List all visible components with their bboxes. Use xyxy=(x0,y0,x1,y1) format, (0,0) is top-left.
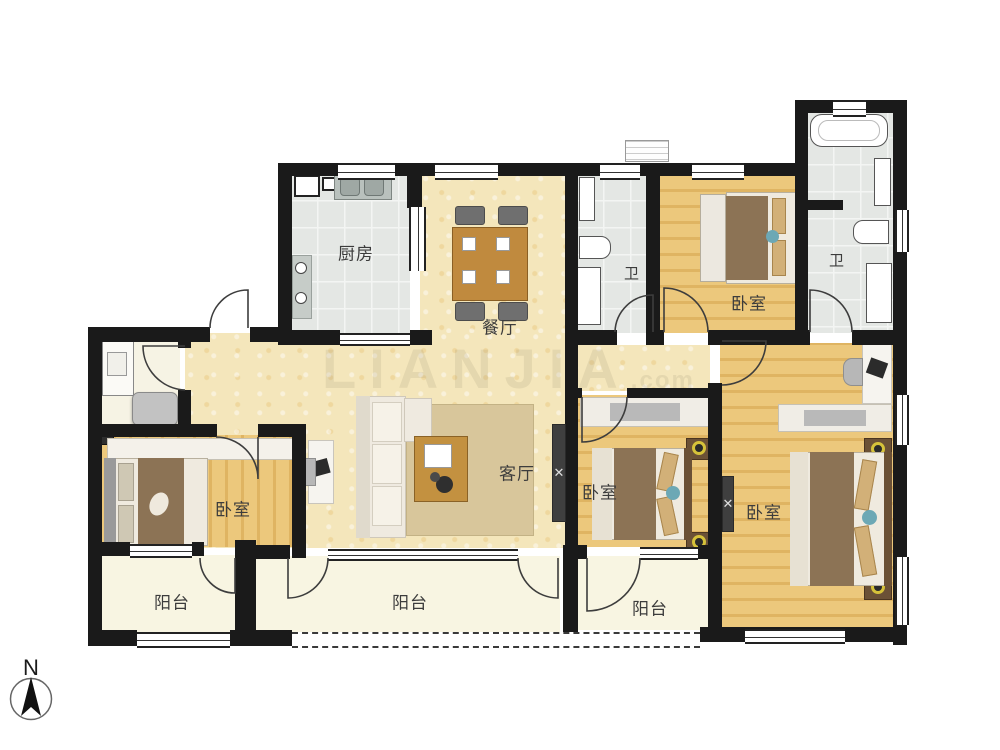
room-label-kitchen: 厨房 xyxy=(338,240,374,265)
window xyxy=(600,163,640,180)
bathtub-inner xyxy=(818,120,880,141)
bed-blanket xyxy=(810,452,854,586)
bathroom-vanity xyxy=(866,263,892,323)
room-label-balcony-center: 阳台 xyxy=(392,589,428,614)
desk-chair xyxy=(843,358,863,386)
window xyxy=(692,163,744,180)
wall xyxy=(795,200,843,210)
bed-pillow xyxy=(772,240,786,276)
bed-pillow xyxy=(772,198,786,234)
bed-headboard xyxy=(684,448,692,540)
sofa-cushion xyxy=(372,486,402,526)
bed-throw xyxy=(862,510,877,525)
wall xyxy=(88,327,210,342)
wall xyxy=(88,630,137,646)
dining-chair xyxy=(455,206,485,225)
window xyxy=(409,207,426,271)
toilet xyxy=(579,236,611,259)
room-label-balcony-left: 阳台 xyxy=(154,589,190,614)
wall xyxy=(256,545,290,559)
floor-plan: LIANJIA.com 厨房 餐厅 卫 卧室 卫 卧室 客厅 卧室 卧室 阳台 … xyxy=(0,0,1000,750)
window xyxy=(640,547,698,560)
wall xyxy=(100,542,130,556)
placemat xyxy=(462,237,476,251)
shower-panel xyxy=(579,177,595,221)
coffee-table-tray xyxy=(424,444,452,468)
utility-sink xyxy=(107,352,127,376)
window xyxy=(895,210,909,252)
wall xyxy=(565,388,582,398)
bed-headboard xyxy=(104,458,116,546)
bed-throw xyxy=(666,486,680,500)
wall xyxy=(235,540,256,643)
window xyxy=(435,163,498,180)
bed-blanket xyxy=(726,196,768,280)
wardrobe-door xyxy=(610,403,680,421)
wall xyxy=(278,163,292,335)
room-label-bedroom-left: 卧室 xyxy=(215,496,251,521)
bed-blanket xyxy=(614,448,656,540)
dining-chair xyxy=(455,302,485,321)
window xyxy=(130,544,192,558)
sofa-backrest xyxy=(356,396,370,538)
wall xyxy=(258,424,294,437)
wall xyxy=(565,345,578,557)
room-label-bathroom-top: 卫 xyxy=(624,263,640,284)
wall xyxy=(292,424,306,558)
dresser xyxy=(700,194,726,282)
sofa-cushion xyxy=(372,444,402,484)
room-label-bedroom-bottom-center: 卧室 xyxy=(582,479,618,504)
wall xyxy=(708,330,802,345)
entry-door-arc xyxy=(210,290,248,328)
tv-cabinet: ✕ xyxy=(722,476,734,532)
toilet xyxy=(853,220,889,244)
wall xyxy=(565,163,578,345)
room-label-living: 客厅 xyxy=(499,460,535,485)
window xyxy=(340,333,410,346)
sofa-cushion xyxy=(372,402,402,442)
wall xyxy=(744,163,802,176)
stove-burner xyxy=(295,262,307,274)
lamp-icon xyxy=(692,441,706,455)
wall xyxy=(410,330,432,345)
room-label-balcony-right: 阳台 xyxy=(632,595,668,620)
shower-panel xyxy=(874,158,891,206)
fridge-icon xyxy=(294,175,320,197)
wall xyxy=(407,163,422,208)
wardrobe-door xyxy=(804,410,866,426)
wall xyxy=(178,333,191,348)
wall xyxy=(278,330,340,345)
window xyxy=(895,395,909,445)
tv-cabinet: ✕ xyxy=(552,424,566,522)
placemat xyxy=(496,270,510,284)
wall xyxy=(646,163,660,345)
wall xyxy=(627,388,712,398)
room-label-bathroom-right: 卫 xyxy=(829,250,845,271)
wall xyxy=(498,163,600,176)
window xyxy=(137,632,230,648)
room-label-bedroom-top-right: 卧室 xyxy=(731,290,767,315)
compass-needle-icon xyxy=(21,677,41,716)
room-label-dining: 餐厅 xyxy=(482,314,518,339)
placemat xyxy=(462,270,476,284)
wall xyxy=(565,545,587,559)
compass-north-label: N xyxy=(23,655,39,681)
bed-headboard xyxy=(884,452,892,586)
dining-chair xyxy=(498,206,528,225)
placemat xyxy=(496,237,510,251)
wall xyxy=(708,383,722,640)
wall xyxy=(698,545,710,559)
wall xyxy=(178,390,191,424)
compass-circle xyxy=(11,679,52,720)
compass xyxy=(11,677,52,720)
bed-pillow xyxy=(118,463,134,501)
window xyxy=(745,629,845,644)
bed-throw xyxy=(766,230,779,243)
window xyxy=(338,163,395,180)
balcony-open-edge xyxy=(292,632,700,648)
wardrobe xyxy=(107,438,293,460)
bed-sheet xyxy=(790,452,808,586)
wall xyxy=(192,542,204,556)
wall xyxy=(88,327,102,646)
wall xyxy=(102,424,217,437)
washing-machine xyxy=(132,392,178,426)
kettle-icon xyxy=(430,472,440,482)
bed-pillow xyxy=(118,505,134,543)
bathroom-vanity xyxy=(577,267,601,325)
window xyxy=(895,557,909,625)
watermark-text: LIANJIA xyxy=(322,337,631,400)
ac-unit-icon xyxy=(625,140,669,162)
wall xyxy=(795,100,808,345)
room-label-bedroom-bottom-right: 卧室 xyxy=(746,499,782,524)
window xyxy=(833,100,866,117)
wall xyxy=(563,545,578,643)
window xyxy=(328,549,518,561)
stove-burner xyxy=(295,292,307,304)
